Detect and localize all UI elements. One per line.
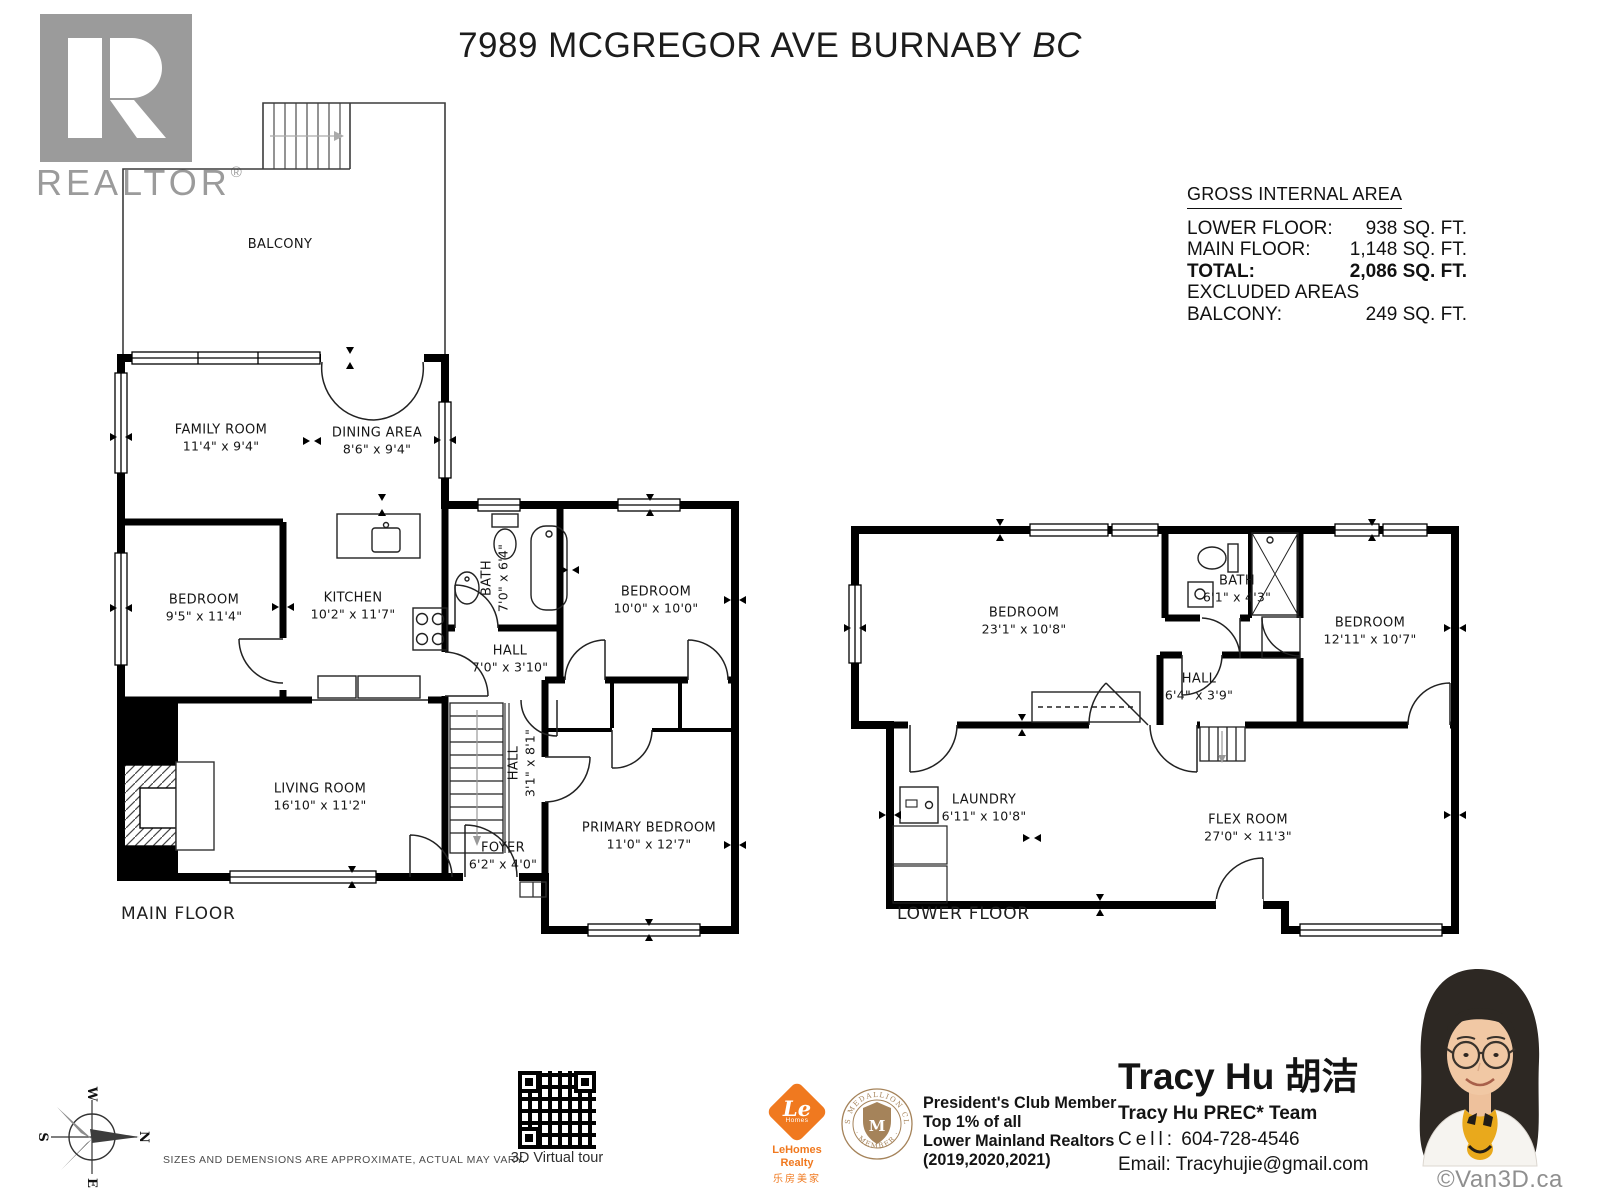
- lower-windows: [849, 524, 1442, 936]
- main-floor-plan: [110, 103, 746, 941]
- agent-cell-number: 604-728-4546: [1181, 1129, 1299, 1150]
- compass: W N S E: [35, 1086, 151, 1188]
- room-label-balcony: BALCONY: [248, 237, 312, 253]
- main-bath-fixtures: [455, 514, 567, 610]
- qr-finder-icon: [574, 1071, 596, 1093]
- award-line: Lower Mainland Realtors: [923, 1132, 1116, 1151]
- lower-dimension-markers: [844, 519, 1466, 916]
- room-label-dining-area: DINING AREA 8'6" x 9'4": [332, 425, 422, 456]
- disclaimer-text: SIZES AND DEMENSIONS ARE APPROXIMATE, AC…: [163, 1154, 526, 1166]
- compass-n: N: [136, 1131, 151, 1143]
- qr-finder-icon: [518, 1071, 540, 1093]
- room-label-kitchen: KITCHEN 10'2" x 11'7": [311, 590, 396, 621]
- room-label-hall-upper: HALL 7'0" x 3'10": [472, 643, 548, 674]
- lehomes-logo: Le Homes LeHomes Realty 乐房美家: [760, 1086, 834, 1185]
- qr-finder-icon: [518, 1127, 540, 1149]
- agent-info: Tracy Hu 胡洁 Tracy Hu PREC* Team Cell: 60…: [1118, 1058, 1369, 1176]
- flex-door-opening: [1216, 899, 1263, 911]
- room-label-lower-bedroom-1: BEDROOM 23'1" x 10'8": [982, 605, 1067, 636]
- lower-doors: [910, 618, 1450, 905]
- van3d-watermark: ©Van3D.ca: [1437, 1166, 1563, 1194]
- lehomes-diamond-icon: Le Homes: [766, 1081, 828, 1143]
- award-line: President's Club Member: [923, 1094, 1116, 1113]
- room-label-main-bedroom-2: BEDROOM 10'0" x 10'0": [614, 584, 699, 615]
- agent-team: Tracy Hu PREC* Team: [1118, 1103, 1369, 1125]
- main-stairs: [450, 703, 509, 853]
- agent-cell: Cell: 604-728-4546: [1118, 1129, 1369, 1151]
- award-line: Top 1% of all: [923, 1113, 1116, 1132]
- agent-email: Email: Tracyhujie@gmail.com: [1118, 1154, 1369, 1176]
- main-closet-walls: [545, 682, 735, 730]
- main-floor-label: MAIN FLOOR: [121, 904, 236, 924]
- medallion-badge: MLS MEDALLION CLUB · MEMBER · M: [836, 1081, 912, 1159]
- agent-name: Tracy Hu 胡洁: [1118, 1058, 1369, 1095]
- lower-closets: [1032, 617, 1300, 722]
- room-label-laundry: LAUNDRY 6'11" x 10'8": [942, 792, 1027, 823]
- awards-text: President's Club Member Top 1% of all Lo…: [923, 1094, 1116, 1170]
- room-label-foyer: FOYER 6'2" x 4'0": [469, 840, 537, 871]
- room-label-primary-bedroom: PRIMARY BEDROOM 11'0" x 12'7": [582, 820, 716, 851]
- lehomes-chinese: 乐房美家: [760, 1170, 834, 1185]
- compass-s: S: [35, 1132, 50, 1141]
- room-label-lower-hall: HALL 6'4" x 3'9": [1165, 671, 1233, 702]
- room-label-lower-bath: BATH 6'1" x 4'3": [1203, 573, 1271, 604]
- qr-code: [518, 1071, 596, 1149]
- award-line: (2019,2020,2021): [923, 1151, 1116, 1170]
- room-label-hall-lower: HALL 3'1" x 8'1": [506, 729, 537, 797]
- laundry-fixtures: [893, 787, 947, 903]
- floorplan-page: 7989 MCGREGOR AVE BURNABYBC REALTOR® GRO…: [0, 0, 1600, 1200]
- room-label-living-room: LIVING ROOM 16'10" x 11'2": [274, 781, 367, 812]
- compass-w: W: [84, 1086, 99, 1102]
- agent-email-address: Tracyhujie@gmail.com: [1176, 1154, 1369, 1175]
- medallion-initial: M: [869, 1117, 886, 1135]
- room-label-flex-room: FLEX ROOM 27'0" × 11'3": [1204, 812, 1292, 843]
- virtual-tour-label: 3D Virtual tour: [496, 1150, 618, 1166]
- lower-stairs-arrow: [1218, 731, 1226, 763]
- room-label-main-bedroom-1: BEDROOM 9'5" x 11'4": [166, 592, 242, 623]
- room-label-lower-bedroom-2: BEDROOM 12'11" x 10'7": [1324, 615, 1417, 646]
- agent-photo: [1420, 969, 1539, 1166]
- lower-floor-plan: [844, 519, 1466, 936]
- lower-floor-label: LOWER FLOOR: [897, 904, 1030, 924]
- lehomes-name: LeHomes Realty: [760, 1144, 834, 1170]
- room-label-family-room: FAMILY ROOM 11'4" x 9'4": [175, 422, 267, 453]
- room-label-main-bath: BATH 7'0" x 6'4": [479, 544, 510, 612]
- balcony-outline: [123, 103, 445, 360]
- fireplace: [121, 698, 214, 877]
- compass-e: E: [84, 1178, 99, 1188]
- lower-outer-walls: [855, 530, 1455, 930]
